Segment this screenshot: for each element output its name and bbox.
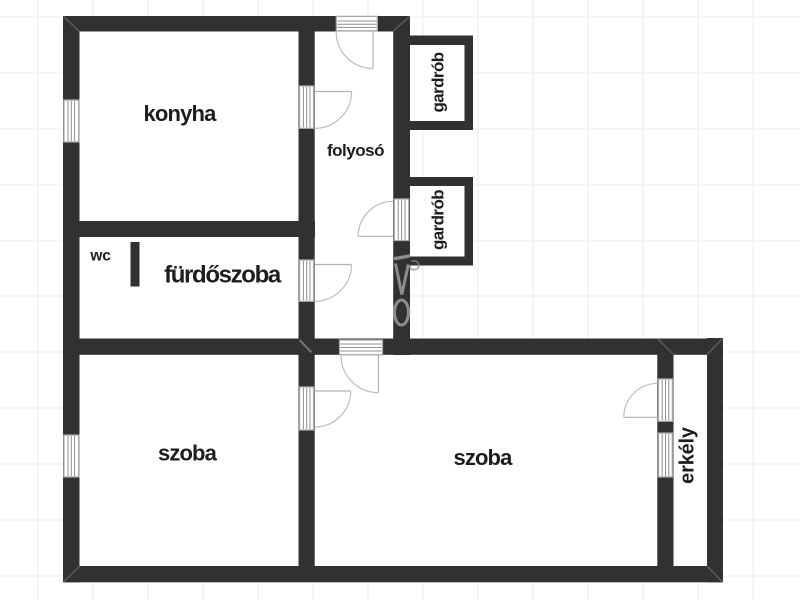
- svg-text:erkély: erkély: [677, 426, 699, 484]
- svg-text:konyha: konyha: [144, 101, 218, 126]
- svg-text:szoba: szoba: [158, 441, 218, 466]
- svg-text:szoba: szoba: [453, 445, 513, 470]
- svg-text:folyosó: folyosó: [327, 141, 384, 160]
- svg-text:fürdőszoba: fürdőszoba: [164, 262, 282, 289]
- svg-text:gardrób: gardrób: [429, 52, 448, 112]
- svg-text:gardrób: gardrób: [429, 190, 448, 250]
- svg-text:wc: wc: [89, 248, 111, 265]
